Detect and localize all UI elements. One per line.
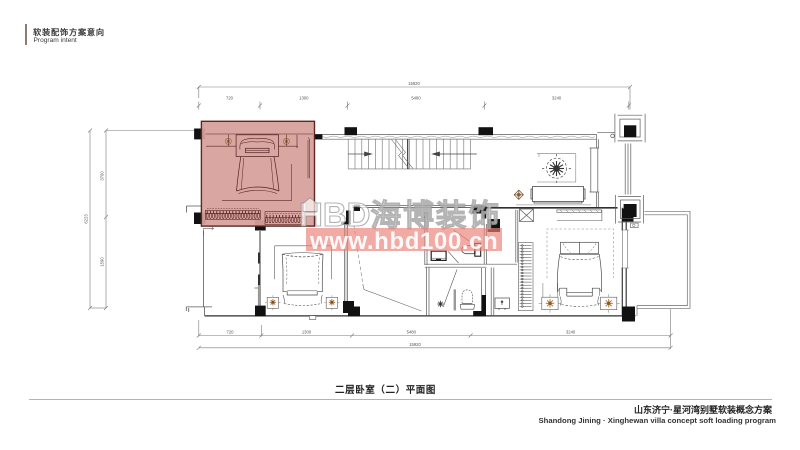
svg-text:15920: 15920: [409, 342, 421, 347]
svg-text:720: 720: [227, 330, 235, 335]
svg-text:1300: 1300: [302, 330, 312, 335]
svg-text:3240: 3240: [566, 330, 576, 335]
svg-text:15920: 15920: [408, 81, 420, 86]
svg-text:3240: 3240: [552, 96, 562, 101]
svg-text:5480: 5480: [411, 96, 421, 101]
svg-text:1590: 1590: [100, 257, 105, 267]
svg-text:1300: 1300: [299, 96, 309, 101]
svg-text:6223: 6223: [84, 214, 89, 224]
svg-text:720: 720: [226, 96, 234, 101]
svg-text:3700: 3700: [100, 171, 105, 181]
svg-text:5480: 5480: [407, 330, 417, 335]
